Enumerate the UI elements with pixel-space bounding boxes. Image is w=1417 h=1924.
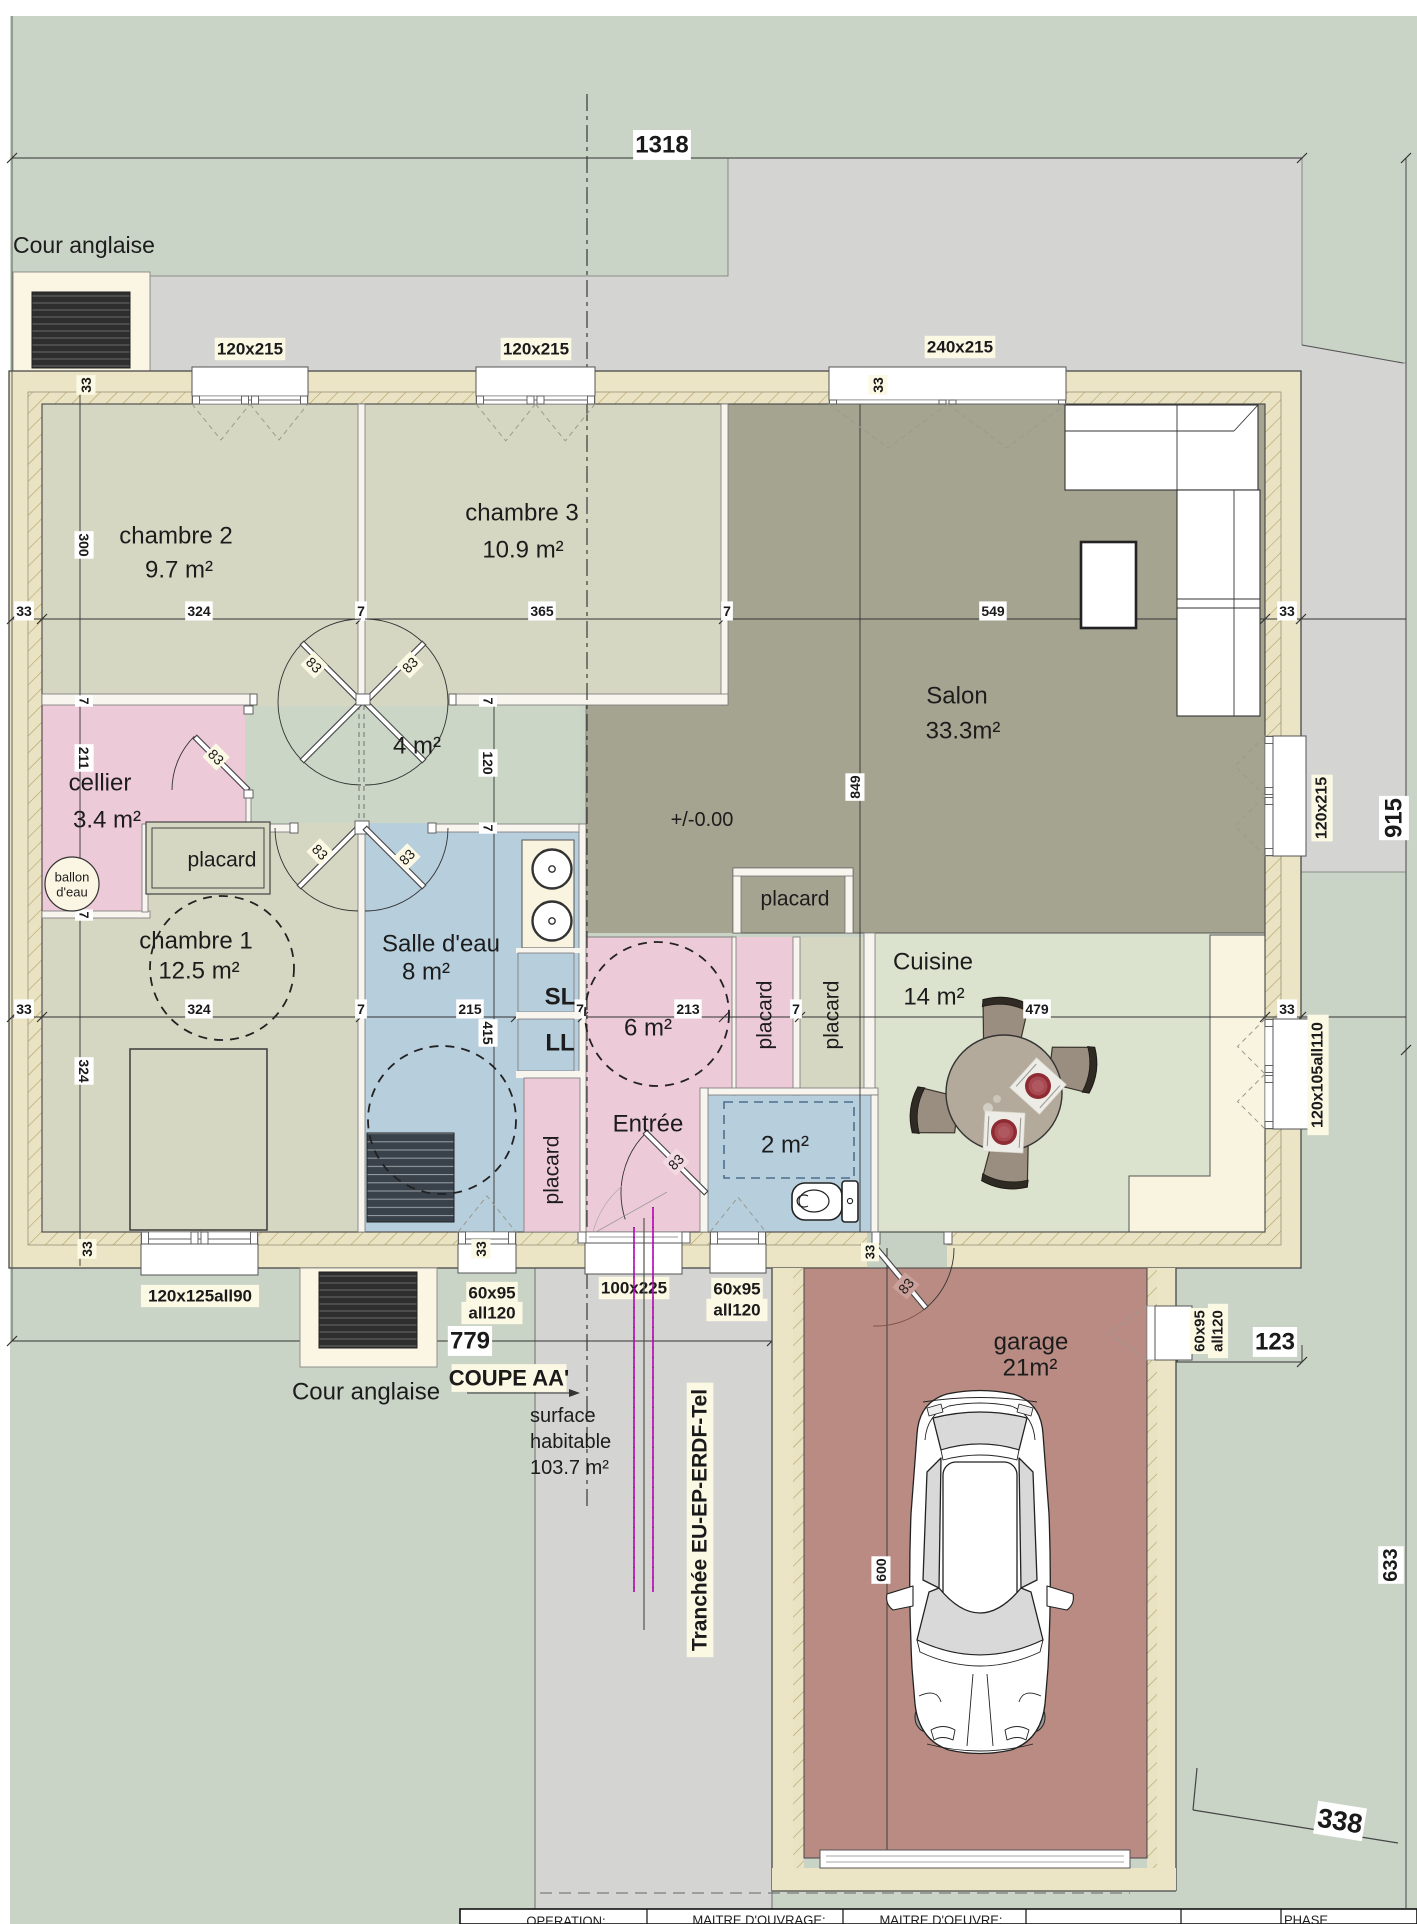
svg-text:1318: 1318 bbox=[635, 132, 688, 159]
svg-text:Cour anglaise: Cour anglaise bbox=[13, 232, 155, 258]
svg-text:9.7 m²: 9.7 m² bbox=[145, 557, 213, 584]
svg-text:120x125all90: 120x125all90 bbox=[148, 1287, 252, 1306]
svg-text:779: 779 bbox=[450, 1328, 490, 1355]
svg-text:14 m²: 14 m² bbox=[903, 984, 964, 1011]
svg-text:103.7 m²: 103.7 m² bbox=[530, 1457, 609, 1479]
svg-text:120: 120 bbox=[480, 751, 496, 775]
svg-text:habitable: habitable bbox=[530, 1431, 611, 1453]
svg-text:COUPE AA': COUPE AA' bbox=[449, 1366, 570, 1391]
svg-text:33: 33 bbox=[473, 1241, 489, 1257]
svg-text:placard: placard bbox=[541, 1136, 564, 1205]
svg-text:7: 7 bbox=[792, 1001, 800, 1017]
svg-text:garage: garage bbox=[994, 1329, 1069, 1356]
svg-text:6 m²: 6 m² bbox=[624, 1015, 672, 1042]
svg-text:placard: placard bbox=[754, 981, 777, 1050]
svg-text:123: 123 bbox=[1255, 1329, 1295, 1356]
svg-text:211: 211 bbox=[76, 747, 92, 770]
svg-text:3.4 m²: 3.4 m² bbox=[73, 807, 141, 834]
svg-text:33: 33 bbox=[16, 603, 32, 619]
svg-text:d'eau: d'eau bbox=[56, 885, 87, 900]
svg-text:324: 324 bbox=[187, 1001, 211, 1017]
svg-text:479: 479 bbox=[1025, 1001, 1049, 1017]
svg-text:placard: placard bbox=[761, 888, 830, 911]
svg-text:MAITRE D'OEUVRE:: MAITRE D'OEUVRE: bbox=[879, 1913, 1002, 1924]
svg-text:849: 849 bbox=[847, 775, 863, 799]
svg-text:324: 324 bbox=[76, 1059, 92, 1083]
svg-text:60x95: 60x95 bbox=[468, 1284, 515, 1303]
svg-text:2 m²: 2 m² bbox=[761, 1132, 809, 1159]
svg-text:300: 300 bbox=[76, 533, 92, 557]
svg-text:chambre 2: chambre 2 bbox=[119, 523, 232, 550]
svg-text:placard: placard bbox=[188, 849, 257, 872]
svg-text:Tranchée EU-EP-ERDF-Tel: Tranchée EU-EP-ERDF-Tel bbox=[689, 1389, 712, 1651]
svg-text:8 m²: 8 m² bbox=[402, 959, 450, 986]
svg-text:549: 549 bbox=[981, 603, 1005, 619]
svg-text:Salle d'eau: Salle d'eau bbox=[382, 931, 500, 958]
svg-text:633: 633 bbox=[1380, 1548, 1402, 1581]
svg-text:120x215: 120x215 bbox=[503, 340, 569, 359]
svg-text:120x215: 120x215 bbox=[217, 340, 283, 359]
svg-text:ballon: ballon bbox=[55, 870, 90, 885]
svg-text:placard: placard bbox=[821, 981, 844, 1050]
svg-text:SL: SL bbox=[545, 984, 576, 1011]
svg-text:7: 7 bbox=[77, 697, 92, 704]
svg-text:7: 7 bbox=[357, 603, 365, 619]
svg-text:all120: all120 bbox=[468, 1304, 515, 1323]
svg-text:120x215: 120x215 bbox=[1314, 777, 1331, 839]
svg-text:OPERATION:: OPERATION: bbox=[526, 1914, 605, 1924]
svg-text:all120: all120 bbox=[1210, 1310, 1227, 1352]
svg-text:7: 7 bbox=[481, 697, 496, 704]
svg-text:33: 33 bbox=[16, 1001, 32, 1017]
svg-text:LL: LL bbox=[545, 1030, 574, 1057]
svg-text:chambre 1: chambre 1 bbox=[139, 928, 252, 955]
svg-text:Entrée: Entrée bbox=[613, 1111, 684, 1138]
svg-text:33.3m²: 33.3m² bbox=[926, 718, 1001, 745]
svg-text:7: 7 bbox=[77, 911, 92, 918]
svg-text:cellier: cellier bbox=[69, 770, 132, 797]
svg-text:12.5 m²: 12.5 m² bbox=[158, 958, 239, 985]
svg-text:7: 7 bbox=[357, 1001, 365, 1017]
svg-text:Cour anglaise: Cour anglaise bbox=[292, 1379, 440, 1406]
svg-text:213: 213 bbox=[676, 1001, 700, 1017]
svg-text:chambre 3: chambre 3 bbox=[465, 500, 578, 527]
svg-text:33: 33 bbox=[1279, 603, 1295, 619]
svg-text:415: 415 bbox=[480, 1021, 496, 1045]
svg-text:215: 215 bbox=[458, 1001, 482, 1017]
svg-text:7: 7 bbox=[723, 603, 731, 619]
svg-text:21m²: 21m² bbox=[1003, 1355, 1058, 1382]
svg-text:4 m²: 4 m² bbox=[393, 733, 441, 760]
svg-text:all120: all120 bbox=[713, 1301, 760, 1320]
svg-text:60x95: 60x95 bbox=[713, 1280, 760, 1299]
svg-text:33: 33 bbox=[79, 1241, 95, 1257]
svg-text:Salon: Salon bbox=[926, 683, 987, 710]
svg-text:33: 33 bbox=[1279, 1001, 1295, 1017]
svg-text:Cuisine: Cuisine bbox=[893, 949, 973, 976]
svg-text:33: 33 bbox=[870, 377, 886, 393]
svg-text:10.9 m²: 10.9 m² bbox=[482, 537, 563, 564]
svg-text:60x95: 60x95 bbox=[1192, 1310, 1209, 1352]
svg-text:915: 915 bbox=[1381, 798, 1408, 838]
svg-text:PHASE: PHASE bbox=[1284, 1913, 1328, 1924]
svg-text:7: 7 bbox=[481, 824, 496, 831]
svg-text:33: 33 bbox=[78, 377, 94, 393]
svg-text:+/-0.00: +/-0.00 bbox=[671, 809, 734, 831]
svg-text:324: 324 bbox=[187, 603, 211, 619]
svg-text:365: 365 bbox=[530, 603, 554, 619]
svg-text:600: 600 bbox=[873, 1558, 889, 1582]
svg-text:33: 33 bbox=[863, 1245, 878, 1259]
svg-text:MAITRE D'OUVRAGE:: MAITRE D'OUVRAGE: bbox=[692, 1913, 825, 1924]
svg-text:surface: surface bbox=[530, 1405, 596, 1427]
svg-text:240x215: 240x215 bbox=[927, 338, 993, 357]
svg-text:120x105all110: 120x105all110 bbox=[1310, 1022, 1327, 1128]
